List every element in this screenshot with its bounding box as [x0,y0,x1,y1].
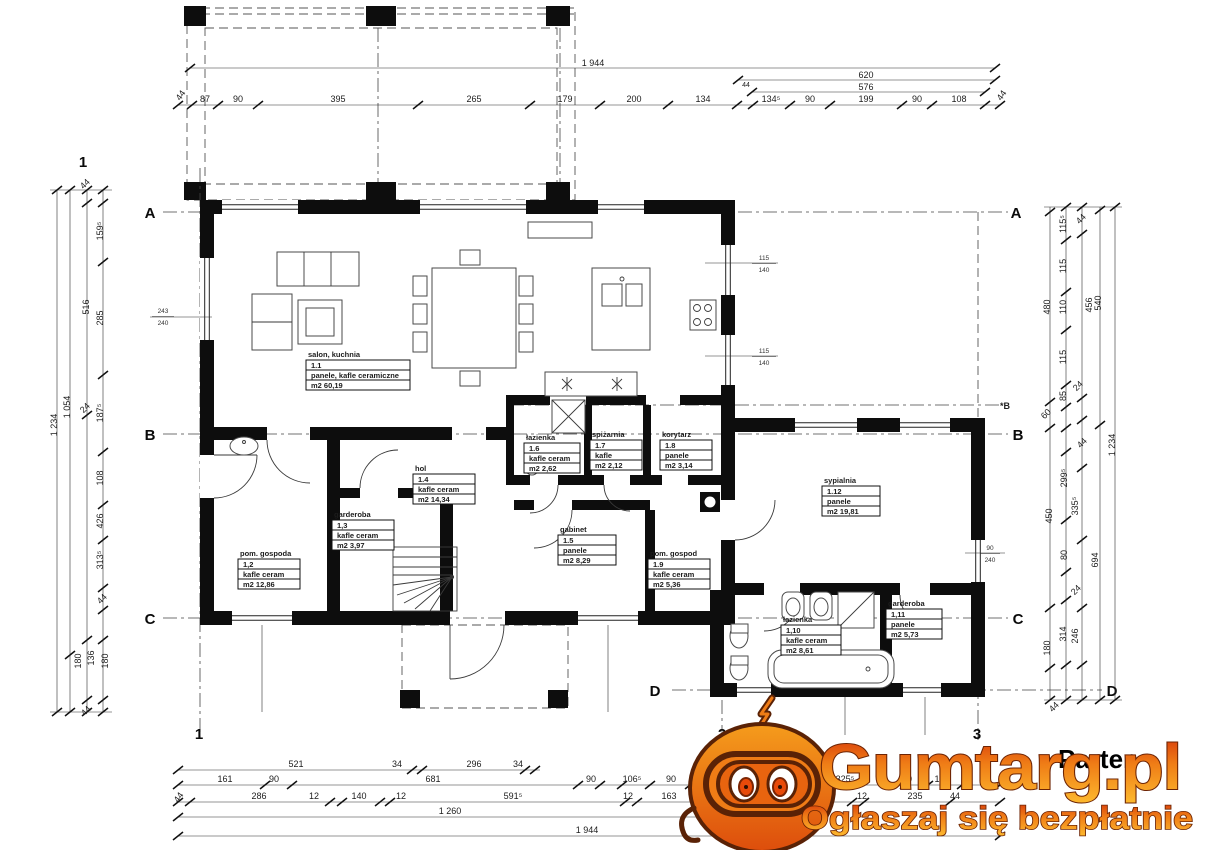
svg-text:521: 521 [288,759,303,769]
svg-text:panele: panele [665,451,689,460]
svg-text:1.5: 1.5 [563,536,573,545]
shower [552,400,585,433]
svg-text:90: 90 [269,774,279,784]
kitchen-island [592,268,650,350]
svg-text:44: 44 [742,82,750,89]
svg-text:136: 136 [86,650,96,665]
window [200,258,214,340]
window [721,335,735,385]
svg-text:591⁵: 591⁵ [504,791,523,801]
svg-text:44: 44 [1075,436,1089,450]
window [737,683,771,697]
room-label-garderoba-2: garderoba 1,11 panele m2 5,73 [886,599,942,639]
window [578,611,638,625]
svg-text:134⁵: 134⁵ [762,94,781,104]
watermark-tagline: Ogłaszaj się bezpłatnie [801,800,1193,836]
svg-text:kafle ceram: kafle ceram [529,454,571,463]
svg-text:łazienka: łazienka [783,615,813,624]
svg-text:panele: panele [563,546,587,555]
room-label-sypialnia: sypialnia 1.12 panele m2 19,81 [822,476,880,516]
window [222,200,298,214]
svg-text:salon, kuchnia: salon, kuchnia [308,350,361,359]
room-label-salon-kuchnia: salon, kuchnia 1.1 panele, kafle ceramic… [306,350,410,390]
svg-text:m2 60,19: m2 60,19 [311,381,343,390]
svg-text:163: 163 [661,791,676,801]
svg-text:panele: panele [891,620,915,629]
svg-text:179: 179 [557,94,572,104]
axis-label-c-left: C [145,611,156,628]
svg-text:m2 8,29: m2 8,29 [563,556,591,565]
svg-text:60: 60 [1039,407,1053,421]
svg-text:516: 516 [81,299,91,314]
axis-label-b-right: B [1013,427,1024,444]
svg-text:180: 180 [73,653,83,668]
svg-text:199: 199 [858,94,873,104]
room-label-garderoba-1: garderoba 1,3 kafle ceram m2 3,97 [332,510,394,550]
svg-text:sypialnia: sypialnia [824,476,857,485]
stove [690,300,716,330]
svg-text:180: 180 [1042,640,1052,655]
svg-text:kafle ceram: kafle ceram [418,485,460,494]
window [598,200,644,214]
axis-label-b-left: B [145,427,156,444]
svg-text:115: 115 [1058,350,1068,364]
dimension-labels-left: 1 234 1 054 180 44 516 24 136 44 159⁵ 28… [49,177,110,718]
svg-text:44: 44 [995,88,1009,102]
svg-text:44: 44 [79,704,93,718]
axis-label-b-aux: *B [1000,401,1011,411]
svg-text:140: 140 [759,267,770,274]
svg-text:44: 44 [78,177,92,191]
window [971,540,985,582]
svg-text:285: 285 [95,310,105,325]
dim-sub1: 620 [858,70,873,80]
svg-text:395: 395 [330,94,345,104]
svg-text:1 054: 1 054 [62,396,72,419]
window-mark: 115 140 [752,348,776,367]
armchair [252,294,292,350]
svg-text:kafle ceram: kafle ceram [337,531,379,540]
dimension-labels-right: 480 60 450 180 115⁵ 115 110 115 85 299⁵ … [1039,212,1117,714]
svg-text:187⁵: 187⁵ [95,403,105,422]
svg-text:44: 44 [1047,700,1061,714]
svg-text:korytarz: korytarz [662,430,691,439]
svg-text:1.7: 1.7 [595,441,605,450]
svg-text:134: 134 [695,94,710,104]
svg-text:24: 24 [1069,583,1083,597]
svg-text:115⁵: 115⁵ [1058,215,1068,233]
svg-text:pom. gospoda: pom. gospoda [240,549,292,558]
svg-text:161: 161 [217,774,232,784]
axis-label-a-right: A [1011,205,1022,222]
svg-text:426: 426 [95,513,105,528]
svg-text:1,11: 1,11 [891,610,905,619]
svg-text:115: 115 [759,348,770,355]
svg-text:1,3: 1,3 [337,521,347,530]
svg-text:694: 694 [1090,552,1100,567]
svg-text:1.12: 1.12 [827,487,842,496]
svg-text:200: 200 [626,94,641,104]
svg-text:łazienka: łazienka [526,433,556,442]
svg-text:80: 80 [1059,550,1069,560]
svg-text:12: 12 [623,791,633,801]
svg-text:pom. gospod: pom. gospod [650,549,697,558]
svg-text:314: 314 [1058,626,1068,641]
svg-text:296: 296 [466,759,481,769]
window [900,418,950,432]
svg-text:115: 115 [759,255,770,262]
window-mark: 243 240 [152,308,174,327]
svg-text:34: 34 [392,759,402,769]
svg-text:243: 243 [158,308,169,315]
svg-text:1,10: 1,10 [786,626,801,635]
svg-text:m2 5,36: m2 5,36 [653,580,681,589]
appliance-counter [545,372,637,396]
svg-text:265: 265 [466,94,481,104]
svg-text:panele: panele [827,497,851,506]
svg-text:681: 681 [425,774,440,784]
dimension-labels-top: 1 944 620 576 44 87 90 395 265 179 200 1… [174,58,1009,104]
room-label-korytarz: korytarz 1.8 panele m2 3,14 [660,430,712,470]
svg-text:240: 240 [985,557,996,564]
svg-text:kafle ceram: kafle ceram [243,570,285,579]
svg-text:90: 90 [986,545,994,552]
svg-text:1 260: 1 260 [439,806,462,816]
svg-text:hol: hol [415,464,426,473]
counter [528,222,592,238]
svg-text:m2 12,86: m2 12,86 [243,580,275,589]
axis-label-d-right: D [1107,683,1118,700]
svg-text:1 234: 1 234 [1107,434,1117,457]
svg-text:1.6: 1.6 [529,444,539,453]
svg-text:87: 87 [200,94,210,104]
axis-label-c-right: C [1013,611,1024,628]
svg-text:286: 286 [251,791,266,801]
svg-text:kafle ceram: kafle ceram [653,570,695,579]
svg-text:85: 85 [1058,391,1068,401]
floor-plan-drawing: 115 140 115 140 243 240 90 240 A A B B *… [0,0,1216,850]
room-label-hol: hol 1.4 kafle ceram m2 14,34 [413,464,475,504]
svg-text:m2 3,14: m2 3,14 [665,461,693,470]
coffee-table [298,300,342,344]
window [795,418,857,432]
room-label-lazienka-1: łazienka 1.6 kafle ceram m2 2,62 [524,433,580,473]
svg-text:246: 246 [1070,628,1080,643]
svg-text:m2 5,73: m2 5,73 [891,630,919,639]
svg-text:90: 90 [233,94,243,104]
svg-text:34: 34 [513,759,523,769]
svg-text:480: 480 [1042,299,1052,314]
watermark: Gumtarg.pl Ogłaszaj się bezpłatnie [682,698,1193,850]
svg-text:240: 240 [158,320,169,327]
dim-total-top: 1 944 [582,58,605,68]
svg-text:24: 24 [1071,379,1085,393]
dim-sub2: 576 [858,82,873,92]
svg-text:106⁵: 106⁵ [623,774,642,784]
svg-text:335⁵: 335⁵ [1070,496,1080,515]
room-label-pom-gospoda: pom. gospoda 1,2 kafle ceram m2 12,86 [238,549,300,589]
svg-text:12: 12 [396,791,406,801]
washbasin [230,437,258,455]
svg-text:m2 2,62: m2 2,62 [529,464,557,473]
watermark-brand: Gumtarg.pl [819,731,1181,803]
svg-text:180: 180 [100,653,110,668]
svg-text:m2 14,34: m2 14,34 [418,495,451,504]
svg-text:140: 140 [351,791,366,801]
svg-text:90: 90 [666,774,676,784]
axis-label-d-left: D [650,683,661,700]
window [721,245,735,295]
svg-text:kafle ceram: kafle ceram [786,636,828,645]
svg-text:1.1: 1.1 [311,361,321,370]
utility-sink [700,492,720,512]
svg-text:108: 108 [95,470,105,485]
dining-table [413,250,533,386]
svg-text:panele, kafle ceramiczne: panele, kafle ceramiczne [311,371,399,380]
svg-text:m2 8,61: m2 8,61 [786,646,814,655]
svg-text:1.8: 1.8 [665,441,675,450]
svg-text:540: 540 [1093,295,1103,310]
svg-text:313⁵: 313⁵ [95,550,105,569]
svg-text:m2 3,97: m2 3,97 [337,541,365,550]
svg-text:299⁵: 299⁵ [1059,468,1069,487]
svg-text:140: 140 [759,360,770,367]
svg-text:m2 2,12: m2 2,12 [595,461,623,470]
room-label-gabinet: gabinet 1.5 panele m2 8,29 [558,525,616,565]
axis-label-a-left: A [145,205,156,222]
window [420,200,526,214]
sofa [277,252,359,286]
room-label-pom-gospod: pom. gospod 1.9 kafle ceram m2 5,36 [648,549,710,589]
svg-text:1,2: 1,2 [243,560,253,569]
window [232,611,292,625]
svg-text:1 944: 1 944 [576,825,599,835]
svg-text:115: 115 [1058,259,1068,273]
svg-text:450: 450 [1044,508,1054,523]
svg-text:44: 44 [95,592,109,606]
svg-text:gabinet: gabinet [560,525,587,534]
svg-text:spiżarnia: spiżarnia [592,430,625,439]
axis-label-1-top: 1 [79,154,87,171]
svg-text:m2 19,81: m2 19,81 [827,507,859,516]
room-label-spizarnia: spiżarnia 1.7 kafle m2 2,12 [590,430,642,470]
svg-text:90: 90 [912,94,922,104]
window [903,683,941,697]
svg-text:kafle: kafle [595,451,612,460]
svg-text:90: 90 [586,774,596,784]
svg-text:1.4: 1.4 [418,475,429,484]
svg-text:159⁵: 159⁵ [95,221,105,240]
svg-text:12: 12 [309,791,319,801]
svg-text:110: 110 [1058,300,1068,314]
svg-text:44: 44 [174,88,188,102]
window-mark: 115 140 [752,255,776,274]
room-label-lazienka-2: łazienka 1,10 kafle ceram m2 8,61 [781,615,841,655]
svg-text:garderoba: garderoba [334,510,372,519]
svg-text:44: 44 [1074,212,1088,226]
svg-text:1 234: 1 234 [49,414,59,437]
svg-text:1.9: 1.9 [653,560,663,569]
axis-label-1-bottom: 1 [195,726,203,743]
floor-plan-page: 115 140 115 140 243 240 90 240 A A B B *… [0,0,1216,850]
svg-text:90: 90 [805,94,815,104]
svg-text:108: 108 [951,94,966,104]
svg-text:garderoba: garderoba [888,599,926,608]
